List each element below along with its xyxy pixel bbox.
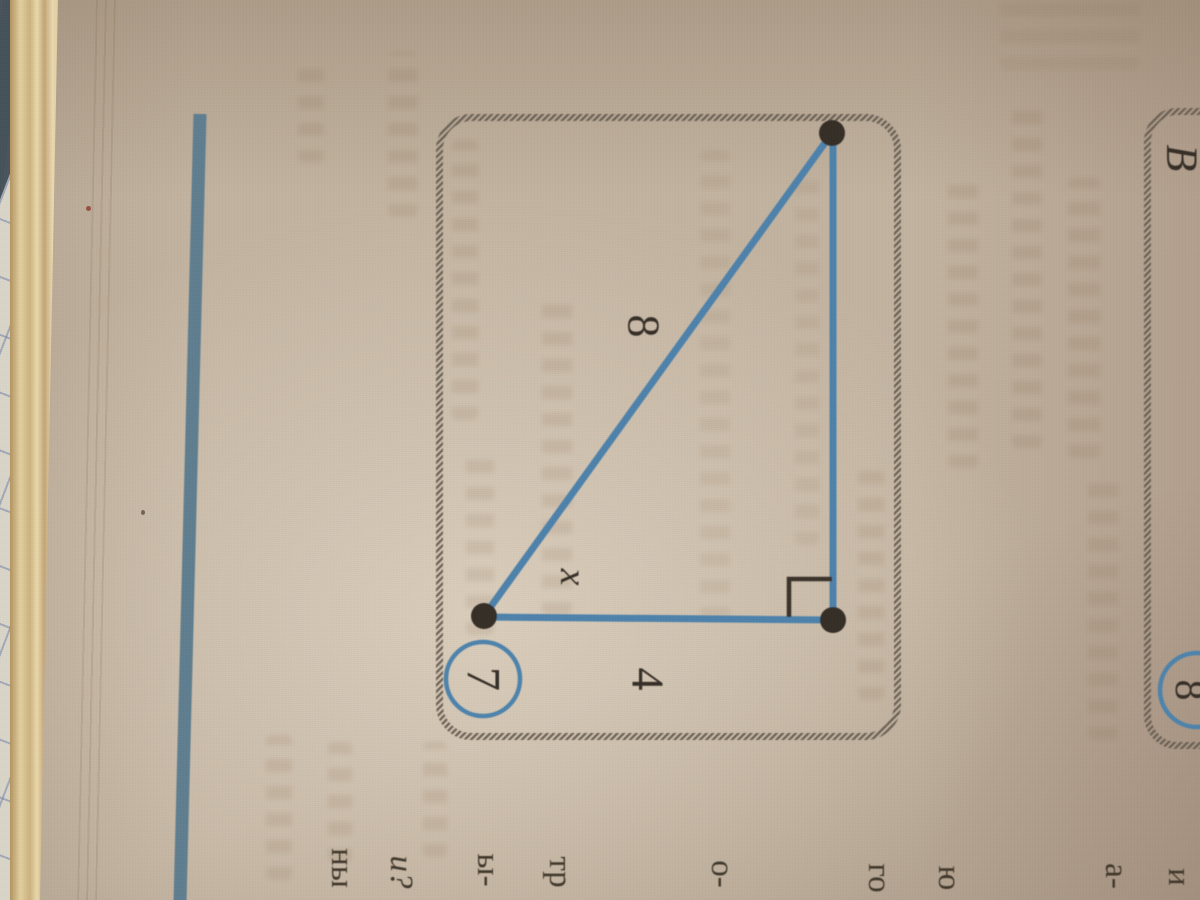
problem-7-frame-border bbox=[440, 118, 898, 737]
angle-x-label: x bbox=[552, 568, 594, 586]
book-page: x 8 4 7 B 8 ны и? ы- тр о- го ю bbox=[0, 0, 1200, 900]
line-fragment: а- bbox=[1098, 863, 1134, 889]
line-fragment: о- bbox=[704, 860, 740, 888]
problem-number-7: 7 bbox=[457, 667, 510, 691]
leg-4-label: 4 bbox=[623, 668, 674, 691]
line-fragment: и bbox=[1161, 868, 1197, 886]
text-line-fragments: ны и? ы- тр о- го ю а- и bbox=[324, 848, 1197, 893]
triangle-hypotenuse bbox=[484, 133, 832, 616]
line-fragment: ы- bbox=[470, 853, 506, 886]
vertex-dot bbox=[820, 607, 846, 633]
line-fragment: ны bbox=[324, 848, 360, 888]
geometry-figure-svg: x 8 4 7 B 8 ны и? ы- тр о- го ю bbox=[0, 0, 1200, 900]
line-fragment: ю bbox=[931, 866, 967, 891]
textbook-photo: x 8 4 7 B 8 ны и? ы- тр о- го ю bbox=[0, 0, 1200, 900]
vertex-dot bbox=[471, 603, 497, 629]
line-fragment: го bbox=[861, 863, 897, 892]
next-figure-vertex-b-label: B bbox=[1158, 145, 1200, 172]
line-fragment: тр bbox=[542, 856, 578, 887]
page-accent-stripe bbox=[180, 114, 200, 900]
next-problem-number-8: 8 bbox=[1166, 680, 1200, 701]
line-fragment: и? bbox=[383, 856, 419, 890]
hypotenuse-8-label: 8 bbox=[619, 315, 670, 338]
vertex-dot bbox=[819, 120, 845, 146]
problem-8-frame-border bbox=[1148, 112, 1200, 746]
triangle-leg-bottom bbox=[484, 617, 833, 620]
